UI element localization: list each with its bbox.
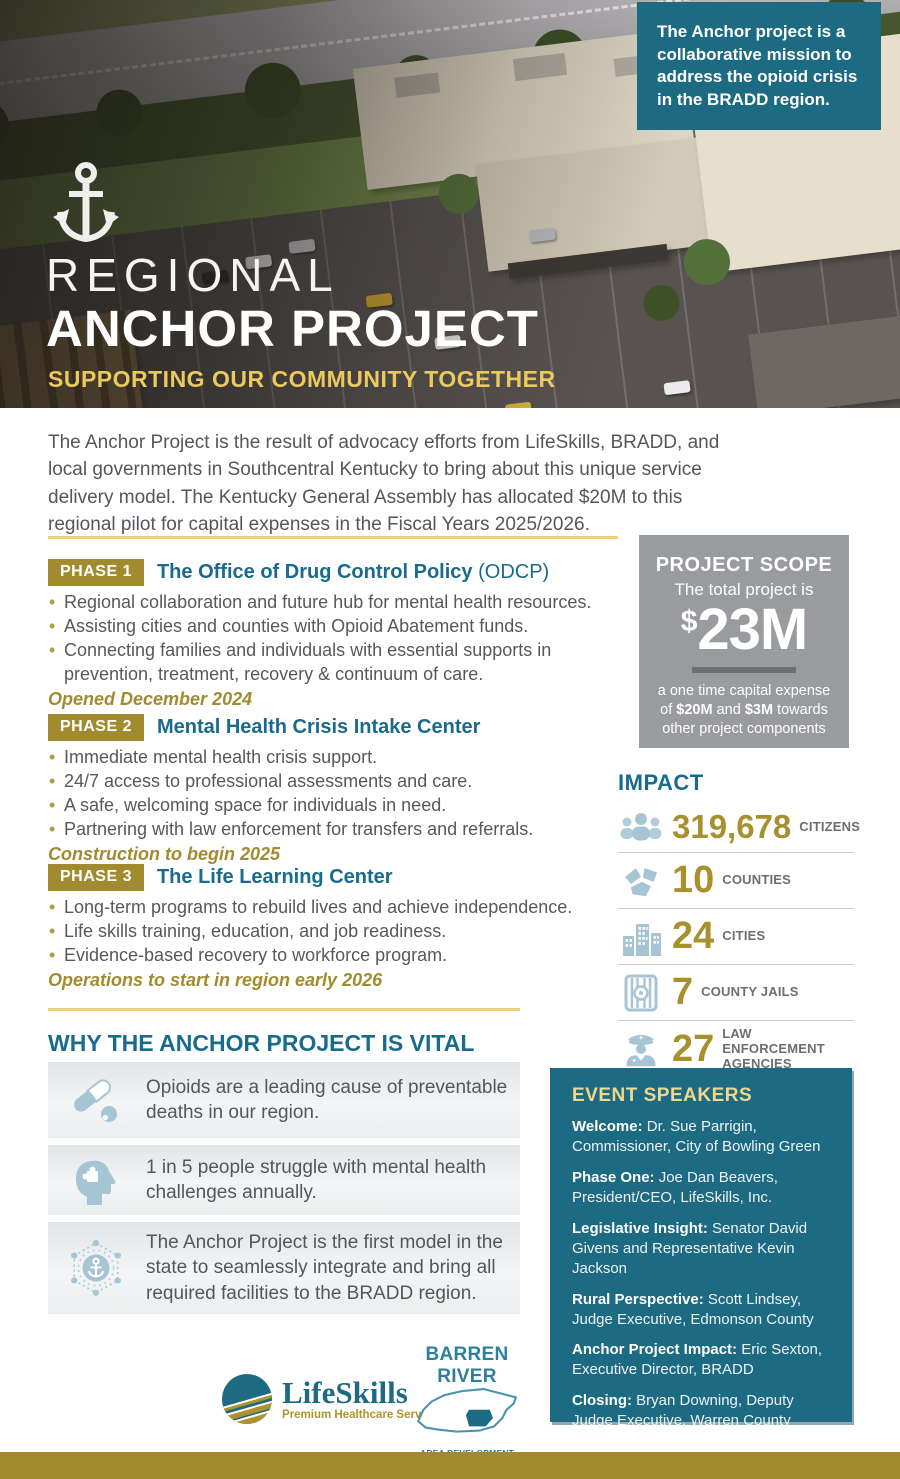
police-icon <box>618 1028 664 1070</box>
impact-row-counties: 10 COUNTIES <box>618 853 854 909</box>
speaker-role: Rural Perspective: <box>572 1291 704 1308</box>
vital-card-text: 1 in 5 people struggle with mental healt… <box>128 1155 520 1205</box>
phase-bullet: Life skills training, education, and job… <box>48 920 626 944</box>
impact-section: IMPACT 319,678 CITIZENS <box>618 770 854 1078</box>
impact-row-cities: 24 CITIES <box>618 909 854 965</box>
vital-card-text: Opioids are a leading cause of preventab… <box>128 1075 520 1125</box>
section-divider <box>48 1008 520 1011</box>
vital-card-text: The Anchor Project is the first model in… <box>128 1230 520 1305</box>
phase-bullet: Partnering with law enforcement for tran… <box>48 818 626 842</box>
speaker-item: Phase One: Joe Dan Beavers, President/CE… <box>572 1168 830 1208</box>
phase-bullet: Connecting families and individuals with… <box>48 639 626 687</box>
impact-label: COUNTY JAILS <box>701 985 799 1000</box>
phase-3-bullets: Long-term programs to rebuild lives and … <box>48 896 626 968</box>
phase-bullet: Long-term programs to rebuild lives and … <box>48 896 626 920</box>
footer-bar <box>0 1452 900 1479</box>
impact-value: 27 <box>672 1028 714 1071</box>
phase-2-status: Construction to begin 2025 <box>48 844 626 865</box>
event-speakers-box: EVENT SPEAKERS Welcome: Dr. Sue Parrigin… <box>550 1068 852 1422</box>
speaker-role: Closing: <box>572 1392 632 1409</box>
vital-card-mental-health: 1 in 5 people struggle with mental healt… <box>48 1145 520 1215</box>
phase-3-badge: PHASE 3 <box>48 864 144 891</box>
scope-divider <box>692 667 796 673</box>
section-divider <box>48 536 618 539</box>
phase-1-section: PHASE 1 The Office of Drug Control Polic… <box>48 559 626 710</box>
vital-card-opioids: Opioids are a leading cause of preventab… <box>48 1062 520 1138</box>
impact-row-citizens: 319,678 CITIZENS <box>618 802 854 853</box>
phase-bullet: Assisting cities and counties with Opioi… <box>48 615 626 639</box>
speaker-role: Phase One: <box>572 1169 655 1186</box>
project-scope-box: PROJECT SCOPE The total project is $23M … <box>639 535 849 748</box>
phase-1-status: Opened December 2024 <box>48 689 626 710</box>
intro-paragraph: The Anchor Project is the result of advo… <box>48 429 754 538</box>
barren-river-name: BARREN RIVER <box>403 1344 531 1388</box>
citizens-icon <box>618 810 664 844</box>
impact-value: 24 <box>672 915 714 958</box>
phase-bullet: Regional collaboration and future hub fo… <box>48 591 626 615</box>
phase-3-section: PHASE 3 The Life Learning Center Long-te… <box>48 864 626 991</box>
speaker-item: Closing: Bryan Downing, Deputy Judge Exe… <box>572 1391 830 1431</box>
phase-2-title: Mental Health Crisis Intake Center <box>157 716 480 739</box>
mental-health-icon <box>64 1153 128 1207</box>
speaker-item: Rural Perspective: Scott Lindsey, Judge … <box>572 1290 830 1330</box>
impact-title: IMPACT <box>618 770 854 796</box>
flyer-page: REGIONAL ANCHOR PROJECT SUPPORTING OUR C… <box>0 0 900 1479</box>
hero-title-regional: REGIONAL <box>46 248 340 302</box>
counties-icon <box>618 863 664 899</box>
impact-label: CITIES <box>722 929 765 944</box>
phase-3-title: The Life Learning Center <box>157 866 393 889</box>
vital-card-first-model: The Anchor Project is the first model in… <box>48 1222 520 1314</box>
phase-bullet: Evidence-based recovery to workforce pro… <box>48 944 626 968</box>
anchor-network-icon <box>64 1239 128 1297</box>
impact-value: 7 <box>672 971 693 1014</box>
kentucky-map <box>415 1388 519 1442</box>
jail-icon <box>618 973 664 1013</box>
impact-value: 319,678 <box>672 808 791 846</box>
phase-2-section: PHASE 2 Mental Health Crisis Intake Cent… <box>48 714 626 865</box>
anchor-icon <box>50 160 122 256</box>
impact-label: CITIZENS <box>799 820 860 835</box>
pill-icon <box>64 1074 128 1126</box>
phase-2-badge: PHASE 2 <box>48 714 144 741</box>
speaker-item: Welcome: Dr. Sue Parrigin, Commissioner,… <box>572 1117 830 1157</box>
phase-bullet: Immediate mental health crisis support. <box>48 746 626 770</box>
phase-3-status: Operations to start in region early 2026 <box>48 970 626 991</box>
hero-subtitle: SUPPORTING OUR COMMUNITY TOGETHER <box>48 366 556 393</box>
phase-1-title-suffix: (ODCP) <box>473 561 550 583</box>
impact-row-jails: 7 COUNTY JAILS <box>618 965 854 1021</box>
scope-amount: $23M <box>639 600 849 661</box>
speaker-role: Anchor Project Impact: <box>572 1341 737 1358</box>
speakers-title: EVENT SPEAKERS <box>572 1085 830 1107</box>
scope-note: a one time capital expense of $20M and $… <box>639 682 849 739</box>
phase-1-badge: PHASE 1 <box>48 559 144 586</box>
speaker-role: Legislative Insight: <box>572 1220 708 1237</box>
speaker-role: Welcome: <box>572 1118 643 1135</box>
vital-title: WHY THE ANCHOR PROJECT IS VITAL <box>48 1030 474 1057</box>
mission-callout: The Anchor project is a collaborative mi… <box>637 2 881 130</box>
impact-value: 10 <box>672 859 714 902</box>
phase-2-bullets: Immediate mental health crisis support. … <box>48 746 626 842</box>
hero-title-anchor-project: ANCHOR PROJECT <box>46 299 539 358</box>
lifeskills-logo-mark <box>222 1374 272 1424</box>
speaker-item: Legislative Insight: Senator David Given… <box>572 1219 830 1279</box>
impact-label: LAW ENFORCEMENT AGENCIES <box>722 1027 852 1072</box>
scope-title: PROJECT SCOPE <box>639 554 849 577</box>
phase-1-bullets: Regional collaboration and future hub fo… <box>48 591 626 687</box>
cities-icon <box>618 918 664 956</box>
speaker-item: Anchor Project Impact: Eric Sexton, Exec… <box>572 1340 830 1380</box>
phase-bullet: 24/7 access to professional assessments … <box>48 770 626 794</box>
phase-bullet: A safe, welcoming space for individuals … <box>48 794 626 818</box>
phase-1-title: The Office of Drug Control Policy (ODCP) <box>157 561 549 584</box>
impact-label: COUNTIES <box>722 873 791 888</box>
